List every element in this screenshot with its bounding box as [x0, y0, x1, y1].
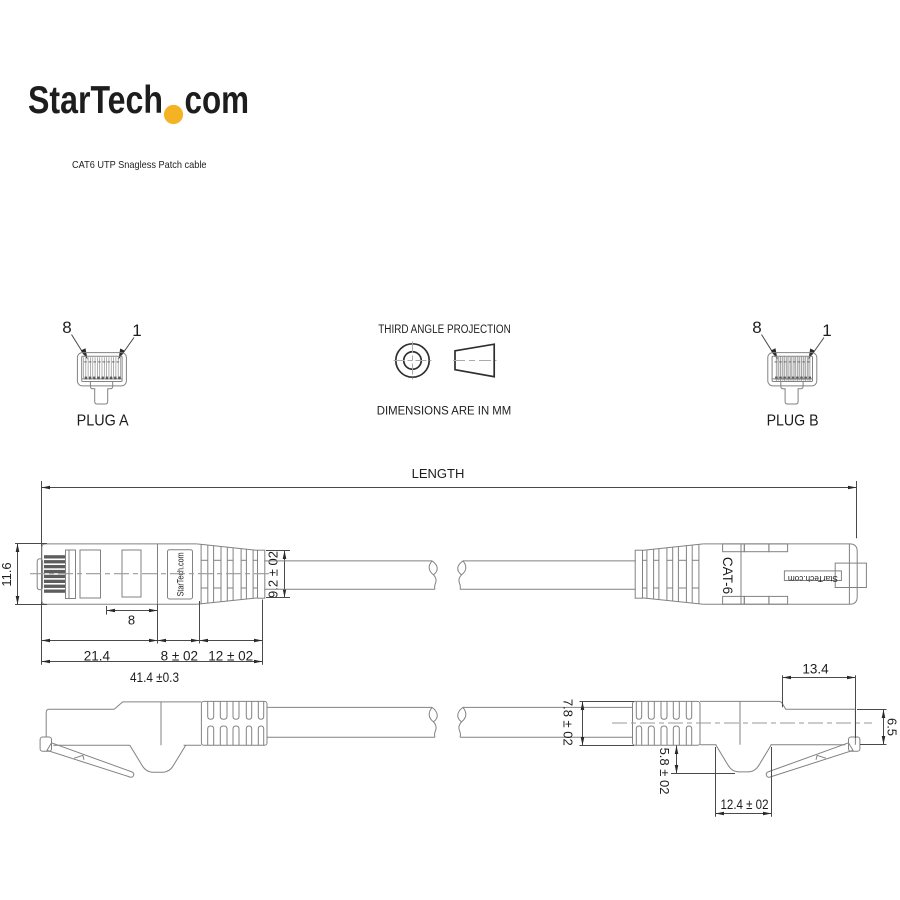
- svg-text:6.5: 6.5: [884, 718, 899, 736]
- svg-text:THIRD ANGLE PROJECTION: THIRD ANGLE PROJECTION: [378, 324, 511, 336]
- svg-text:com: com: [185, 79, 250, 122]
- svg-text:StarTech.com: StarTech.com: [788, 574, 838, 583]
- svg-text:13.4: 13.4: [802, 662, 829, 677]
- svg-text:8: 8: [62, 318, 71, 337]
- svg-text:1: 1: [132, 321, 141, 340]
- svg-text:LENGTH: LENGTH: [412, 466, 465, 481]
- svg-text:StarTech: StarTech: [28, 79, 163, 122]
- svg-text:8: 8: [128, 613, 135, 628]
- svg-text:41.4 ±0.3: 41.4 ±0.3: [130, 670, 179, 685]
- svg-text:StarTech.com: StarTech.com: [176, 552, 186, 596]
- svg-text:9.2 ± 02: 9.2 ± 02: [266, 551, 281, 598]
- svg-text:7.8 ± 02: 7.8 ± 02: [561, 699, 576, 746]
- svg-text:1: 1: [822, 321, 831, 340]
- svg-text:11.6: 11.6: [0, 562, 14, 586]
- svg-text:DIMENSIONS ARE IN MM: DIMENSIONS ARE IN MM: [377, 406, 512, 418]
- svg-text:PLUG A: PLUG A: [77, 413, 129, 430]
- svg-text:PLUG B: PLUG B: [767, 413, 819, 430]
- svg-text:CAT6 UTP Snagless Patch cable: CAT6 UTP Snagless Patch cable: [72, 159, 207, 171]
- svg-text:12.4 ± 02: 12.4 ± 02: [721, 797, 769, 812]
- svg-text:CAT-6: CAT-6: [720, 557, 735, 594]
- svg-text:8: 8: [752, 318, 761, 337]
- svg-text:5.8 ± 02: 5.8 ± 02: [657, 748, 672, 795]
